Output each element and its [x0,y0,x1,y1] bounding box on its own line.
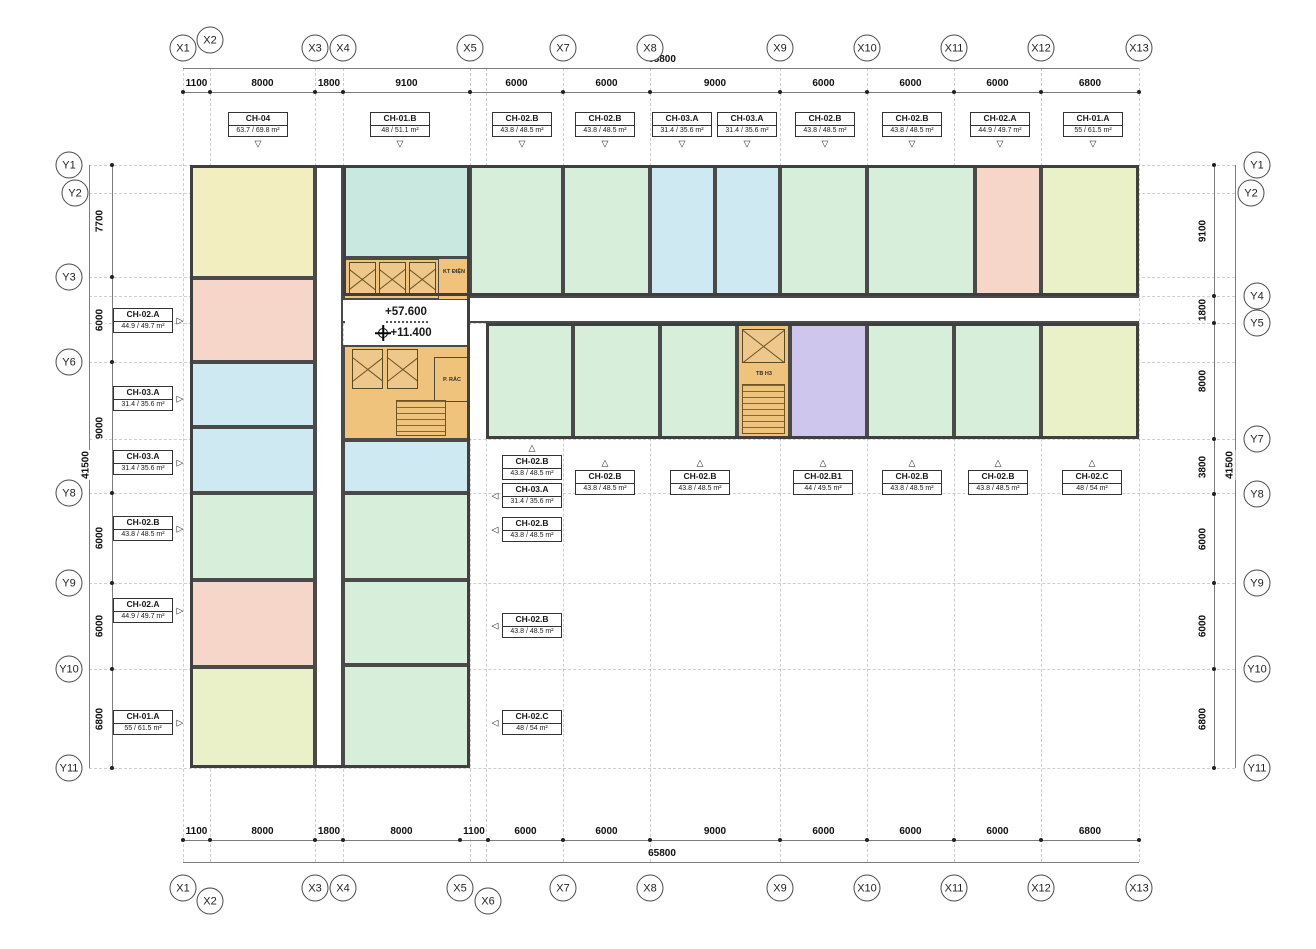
grid-bubble-top-x4: X4 [330,35,357,62]
unit-tag-ch-03.a: CH-03.A31.4 / 35.6 m² [717,112,777,137]
unit-tag-ch-03.a: CH-03.A31.4 / 35.6 m² [502,483,562,508]
tag-pointer-down: ▽ [822,140,829,149]
unit-tag-area: 43.8 / 48.5 m² [114,530,172,540]
unit-tag-ch-02.a: CH-02.A44.9 / 49.7 m² [113,308,173,333]
dim-label-right: 6800 [1198,706,1209,730]
unit-tag-name: CH-02.B [576,113,634,126]
unit-tag-ch-02.c: CH-02.C48 / 54 m² [1062,470,1122,495]
grid-bubble-bottom-x11: X11 [941,875,968,902]
dim-tick [952,90,956,94]
unit-tag-name: CH-02.B [883,471,941,484]
electrical-room-label: KT ĐIỆN [443,269,465,275]
unit-tag-name: CH-03.A [114,451,172,464]
unit-tag-ch-02.b: CH-02.B43.8 / 48.5 m² [968,470,1028,495]
grid-bubble-top-x2: X2 [197,27,224,54]
tag-pointer-down: ▽ [679,140,686,149]
grid-bubble-right-y8: Y8 [1244,481,1271,508]
tag-pointer-up: △ [995,459,1002,468]
unit-tag-name: CH-02.B [503,614,561,627]
level-label-upper: +57.600 [385,306,427,318]
unit-block-ch-02.b [470,165,563,296]
dim-label-top: 6000 [811,78,835,89]
level-separator [386,321,428,323]
unit-tag-area: 44 / 49.5 m² [794,484,852,494]
dim-tick [648,838,652,842]
unit-tag-name: CH-02.B [493,113,551,126]
grid-bubble-left-y3: Y3 [56,264,83,291]
unit-tag-name: CH-01.A [114,711,172,724]
unit-tag-name: CH-02.B [114,517,172,530]
unit-tag-ch-01.a: CH-01.A55 / 61.5 m² [113,710,173,735]
dim-tick [1212,294,1216,298]
unit-tag-ch-02.b: CH-02.B43.8 / 48.5 m² [575,470,635,495]
dim-tick [648,90,652,94]
dim-line-top [183,92,1139,93]
grid-bubble-bottom-x2: X2 [197,888,224,915]
dim-label-top: 6000 [594,78,618,89]
tag-pointer-up: △ [529,444,536,453]
grid-bubble-left-y11: Y11 [56,755,83,782]
unit-tag-ch-02.b: CH-02.B43.8 / 48.5 m² [795,112,855,137]
unit-tag-ch-02.b: CH-02.B43.8 / 48.5 m² [502,517,562,542]
corridor-vertical [315,165,343,768]
dim-tick [110,275,114,279]
dim-label-top: 6000 [985,78,1009,89]
unit-block-ch-03.a [650,165,715,296]
dim-label-bottom: 1100 [462,826,486,837]
unit-tag-area: 48 / 51.1 m² [371,126,429,136]
unit-tag-area: 31.4 / 35.6 m² [114,464,172,474]
dim-label-top: 1100 [185,78,209,89]
tag-pointer-up: △ [909,459,916,468]
unit-block-ch-02.b [343,493,470,580]
unit-tag-area: 55 / 61.5 m² [1064,126,1122,136]
unit-tag-ch-02.a: CH-02.A44.9 / 49.7 m² [113,598,173,623]
unit-tag-ch-04: CH-0463.7 / 69.8 m² [228,112,288,137]
dim-label-right: 6000 [1198,614,1209,638]
unit-block-ch-01.a [1041,165,1139,296]
grid-bubble-bottom-x12: X12 [1028,875,1055,902]
unit-tag-name: CH-03.A [718,113,776,126]
dim-label-right: 6000 [1198,526,1209,550]
tag-pointer-up: △ [1089,459,1096,468]
dim-label-bottom: 1100 [185,826,209,837]
dim-tick [110,163,114,167]
dim-tick [1137,838,1141,842]
unit-tag-name: CH-02.B [969,471,1027,484]
unit-tag-name: CH-03.A [653,113,711,126]
unit-block-ch-02.b [190,493,315,580]
dim-label-top: 6800 [1078,78,1102,89]
unit-tag-name: CH-02.B [671,471,729,484]
dim-label-top: 8000 [250,78,274,89]
grid-bubble-bottom-x7: X7 [550,875,577,902]
level-marker-icon [378,328,388,338]
grid-bubble-right-y7: Y7 [1244,426,1271,453]
tag-pointer-down: ▽ [1090,140,1097,149]
dim-label-top: 9000 [703,78,727,89]
dim-tick [313,90,317,94]
unit-tag-area: 44.9 / 49.7 m² [114,322,172,332]
dim-label-bottom: 8000 [250,826,274,837]
tag-pointer-right: ▷ [177,395,184,404]
tag-pointer-up: △ [602,459,609,468]
unit-tag-name: CH-02.A [114,599,172,612]
floor-plan-drawing: KT ĐIỆN P. RÁC TB H3 +57.600 +11.400 658… [0,0,1316,949]
unit-tag-area: 63.7 / 69.8 m² [229,126,287,136]
dim-tick [1212,766,1216,770]
unit-tag-name: CH-02.A [971,113,1029,126]
unit-block-ch-02.b [563,165,650,296]
unit-tag-area: 43.8 / 48.5 m² [503,469,561,479]
grid-bubble-right-y2: Y2 [1238,180,1265,207]
elevator-shaft-icon [379,262,406,296]
trash-room-label: P. RÁC [443,377,461,383]
dim-tick [458,838,462,842]
unit-tag-area: 43.8 / 48.5 m² [671,484,729,494]
unit-tag-area: 31.4 / 35.6 m² [114,400,172,410]
grid-bubble-top-x10: X10 [854,35,881,62]
overall-dim-line-top [183,68,1139,69]
dim-tick [952,838,956,842]
dim-label-left: 9000 [95,415,106,439]
unit-tag-name: CH-02.C [1063,471,1121,484]
dim-label-top: 6000 [898,78,922,89]
grid-bubble-top-x8: X8 [637,35,664,62]
unit-block-ch-02.b [780,165,867,296]
grid-bubble-left-y8: Y8 [56,480,83,507]
tag-pointer-down: ▽ [997,140,1004,149]
grid-bubble-top-x5: X5 [457,35,484,62]
staircase [742,384,785,434]
unit-block-ch-02.c [343,665,470,768]
unit-tag-ch-02.b1: CH-02.B144 / 49.5 m² [793,470,853,495]
overall-dim-right: 41500 [1225,450,1236,480]
unit-block-ch-02.b [954,323,1041,439]
grid-bubble-bottom-x8: X8 [637,875,664,902]
unit-block-ch-04 [190,165,315,278]
unit-block-ch-02.b [660,323,737,439]
unit-tag-area: 43.8 / 48.5 m² [503,531,561,541]
grid-bubble-right-y10: Y10 [1244,656,1271,683]
unit-block-ch-01.b [343,165,470,258]
unit-tag-ch-02.b: CH-02.B43.8 / 48.5 m² [882,112,942,137]
unit-tag-name: CH-02.B1 [794,471,852,484]
unit-tag-area: 43.8 / 48.5 m² [503,627,561,637]
tag-pointer-up: △ [820,459,827,468]
tag-pointer-right: ▷ [177,459,184,468]
dim-label-bottom: 6000 [898,826,922,837]
unit-tag-name: CH-03.A [503,484,561,497]
dim-tick [1039,838,1043,842]
dim-tick [1212,321,1216,325]
dim-tick [1212,437,1216,441]
unit-tag-ch-02.b: CH-02.B43.8 / 48.5 m² [492,112,552,137]
dim-tick [110,360,114,364]
grid-bubble-top-x1: X1 [170,35,197,62]
tag-pointer-down: ▽ [744,140,751,149]
unit-tag-area: 31.4 / 35.6 m² [503,497,561,507]
unit-tag-area: 43.8 / 48.5 m² [796,126,854,136]
dim-label-top: 1800 [317,78,341,89]
unit-tag-ch-02.b: CH-02.B43.8 / 48.5 m² [502,613,562,638]
unit-tag-ch-02.b: CH-02.B43.8 / 48.5 m² [113,516,173,541]
unit-block-ch-02.b [867,165,975,296]
grid-bubble-bottom-x5: X5 [447,875,474,902]
tag-pointer-right: ▷ [177,607,184,616]
unit-tag-area: 43.8 / 48.5 m² [883,126,941,136]
dim-tick [341,838,345,842]
overall-dim-bottom: 65800 [647,848,677,859]
unit-tag-area: 44.9 / 49.7 m² [114,612,172,622]
grid-bubble-left-y9: Y9 [56,570,83,597]
dim-label-left: 6000 [95,307,106,331]
elevator-shaft-icon [349,262,376,296]
unit-tag-ch-03.a: CH-03.A31.4 / 35.6 m² [113,450,173,475]
unit-tag-ch-03.a: CH-03.A31.4 / 35.6 m² [113,386,173,411]
unit-tag-area: 31.4 / 35.6 m² [718,126,776,136]
dim-label-left: 7700 [95,209,106,233]
unit-block-ch-02.b1 [790,323,867,439]
unit-tag-name: CH-03.A [114,387,172,400]
tag-pointer-right: ▷ [177,317,184,326]
unit-tag-ch-02.b: CH-02.B43.8 / 48.5 m² [502,455,562,480]
grid-bubble-top-x13: X13 [1126,35,1153,62]
dim-tick [1137,90,1141,94]
unit-block-ch-02.b [573,323,660,439]
elevator-shaft-icon [387,349,418,389]
unit-tag-area: 48 / 54 m² [503,724,561,734]
unit-tag-name: CH-01.B [371,113,429,126]
unit-block-ch-02.a [975,165,1041,296]
unit-tag-ch-02.a: CH-02.A44.9 / 49.7 m² [970,112,1030,137]
unit-tag-ch-03.a: CH-03.A31.4 / 35.6 m² [652,112,712,137]
unit-block-ch-02.a [190,580,315,667]
tag-pointer-down: ▽ [909,140,916,149]
unit-tag-name: CH-01.A [1064,113,1122,126]
grid-bubble-left-y10: Y10 [56,656,83,683]
overall-dim-left: 41500 [81,450,92,480]
tag-pointer-left: ◁ [492,526,499,535]
grid-bubble-top-x9: X9 [767,35,794,62]
unit-block-ch-02.a [190,278,315,362]
unit-block-ch-03.a [190,427,315,493]
dim-tick [865,90,869,94]
electrical-room [438,258,470,300]
grid-bubble-right-y9: Y9 [1244,570,1271,597]
dim-line-right [1214,165,1215,768]
unit-tag-ch-01.b: CH-01.B48 / 51.1 m² [370,112,430,137]
tag-pointer-down: ▽ [602,140,609,149]
unit-tag-name: CH-02.B [503,456,561,469]
level-label-lower: +11.400 [390,327,431,339]
unit-tag-name: CH-02.A [114,309,172,322]
unit-tag-name: CH-04 [229,113,287,126]
unit-tag-name: CH-02.B [503,518,561,531]
dim-tick [110,581,114,585]
unit-tag-area: 48 / 54 m² [1063,484,1121,494]
grid-bubble-bottom-x13: X13 [1126,875,1153,902]
unit-tag-area: 43.8 / 48.5 m² [493,126,551,136]
grid-bubble-right-y11: Y11 [1244,755,1271,782]
tag-pointer-down: ▽ [255,140,262,149]
unit-tag-ch-02.b: CH-02.B43.8 / 48.5 m² [670,470,730,495]
unit-tag-area: 43.8 / 48.5 m² [576,126,634,136]
dim-tick [208,90,212,94]
grid-bubble-bottom-x6: X6 [475,888,502,915]
grid-bubble-left-y1: Y1 [56,152,83,179]
grid-bubble-bottom-x9: X9 [767,875,794,902]
dim-label-bottom: 6800 [1078,826,1102,837]
grid-line-horizontal [89,768,1235,769]
grid-bubble-bottom-x4: X4 [330,875,357,902]
unit-tag-ch-02.b: CH-02.B43.8 / 48.5 m² [882,470,942,495]
unit-tag-name: CH-02.B [796,113,854,126]
elevator-shaft-icon [742,329,785,363]
tag-pointer-right: ▷ [177,525,184,534]
dim-tick [1212,581,1216,585]
unit-tag-area: 43.8 / 48.5 m² [576,484,634,494]
stair-core-label: TB H3 [756,371,772,377]
dim-tick [486,838,490,842]
dim-line-bottom [183,840,1139,841]
dim-label-right: 9100 [1198,218,1209,242]
unit-tag-ch-02.c: CH-02.C48 / 54 m² [502,710,562,735]
unit-block-ch-02.c [1041,323,1139,439]
unit-block-ch-02.b [867,323,954,439]
dim-tick [1212,667,1216,671]
tag-pointer-left: ◁ [492,622,499,631]
dim-label-bottom: 6000 [594,826,618,837]
unit-tag-area: 43.8 / 48.5 m² [883,484,941,494]
dim-label-right: 8000 [1198,369,1209,393]
dim-label-top: 9100 [394,78,418,89]
grid-bubble-left-y6: Y6 [56,349,83,376]
unit-block-ch-02.b [343,580,470,665]
unit-tag-name: CH-02.B [883,113,941,126]
unit-tag-ch-02.b: CH-02.B43.8 / 48.5 m² [575,112,635,137]
dim-tick [778,90,782,94]
dim-tick [1039,90,1043,94]
grid-bubble-top-x12: X12 [1028,35,1055,62]
tag-pointer-up: △ [697,459,704,468]
dim-tick [778,838,782,842]
dim-tick [313,838,317,842]
dim-tick [110,766,114,770]
grid-bubble-top-x7: X7 [550,35,577,62]
grid-bubble-right-y5: Y5 [1244,310,1271,337]
corridor-stub [470,325,486,437]
grid-bubble-bottom-x1: X1 [170,875,197,902]
dim-tick [110,667,114,671]
grid-bubble-bottom-x10: X10 [854,875,881,902]
grid-bubble-left-y2: Y2 [62,180,89,207]
overall-dim-line-bottom [183,862,1139,863]
dim-label-bottom: 1800 [317,826,341,837]
dim-label-left: 6000 [95,526,106,550]
tag-pointer-down: ▽ [397,140,404,149]
grid-line-vertical [1139,68,1140,862]
unit-tag-area: 31.4 / 35.6 m² [653,126,711,136]
dim-label-left: 6800 [95,706,106,730]
tag-pointer-down: ▽ [519,140,526,149]
unit-tag-name: CH-02.B [576,471,634,484]
dim-tick [341,90,345,94]
dim-label-bottom: 6000 [513,826,537,837]
unit-block-ch-03.a [190,362,315,427]
unit-tag-area: 43.8 / 48.5 m² [969,484,1027,494]
dim-tick [181,90,185,94]
dim-tick [561,90,565,94]
dim-label-top: 6000 [504,78,528,89]
dim-tick [1212,492,1216,496]
dim-label-left: 6000 [95,614,106,638]
unit-block-ch-02.b [486,323,573,439]
dim-label-bottom: 6000 [985,826,1009,837]
dim-tick [110,491,114,495]
unit-tag-name: CH-02.C [503,711,561,724]
dim-tick [468,90,472,94]
dim-tick [865,838,869,842]
unit-tag-area: 55 / 61.5 m² [114,724,172,734]
unit-tag-area: 44.9 / 49.7 m² [971,126,1029,136]
dim-label-right: 1800 [1198,297,1209,321]
dim-tick [208,838,212,842]
dim-label-right: 3800 [1198,454,1209,478]
tag-pointer-left: ◁ [492,719,499,728]
dim-label-bottom: 8000 [389,826,413,837]
staircase [396,400,446,436]
tag-pointer-left: ◁ [492,492,499,501]
grid-bubble-top-x3: X3 [302,35,329,62]
grid-bubble-bottom-x3: X3 [302,875,329,902]
dim-label-bottom: 6000 [811,826,835,837]
grid-bubble-top-x11: X11 [941,35,968,62]
dim-label-bottom: 9000 [703,826,727,837]
unit-block-ch-03.a [343,440,470,493]
dim-tick [561,838,565,842]
elevator-shaft-icon [352,349,383,389]
tag-pointer-right: ▷ [177,719,184,728]
dim-tick [1212,163,1216,167]
elevator-shaft-icon [409,262,436,296]
unit-tag-ch-01.a: CH-01.A55 / 61.5 m² [1063,112,1123,137]
unit-block-ch-01.a [190,667,315,768]
dim-tick [181,838,185,842]
grid-bubble-right-y4: Y4 [1244,283,1271,310]
unit-block-ch-03.a [715,165,780,296]
grid-bubble-right-y1: Y1 [1244,152,1271,179]
